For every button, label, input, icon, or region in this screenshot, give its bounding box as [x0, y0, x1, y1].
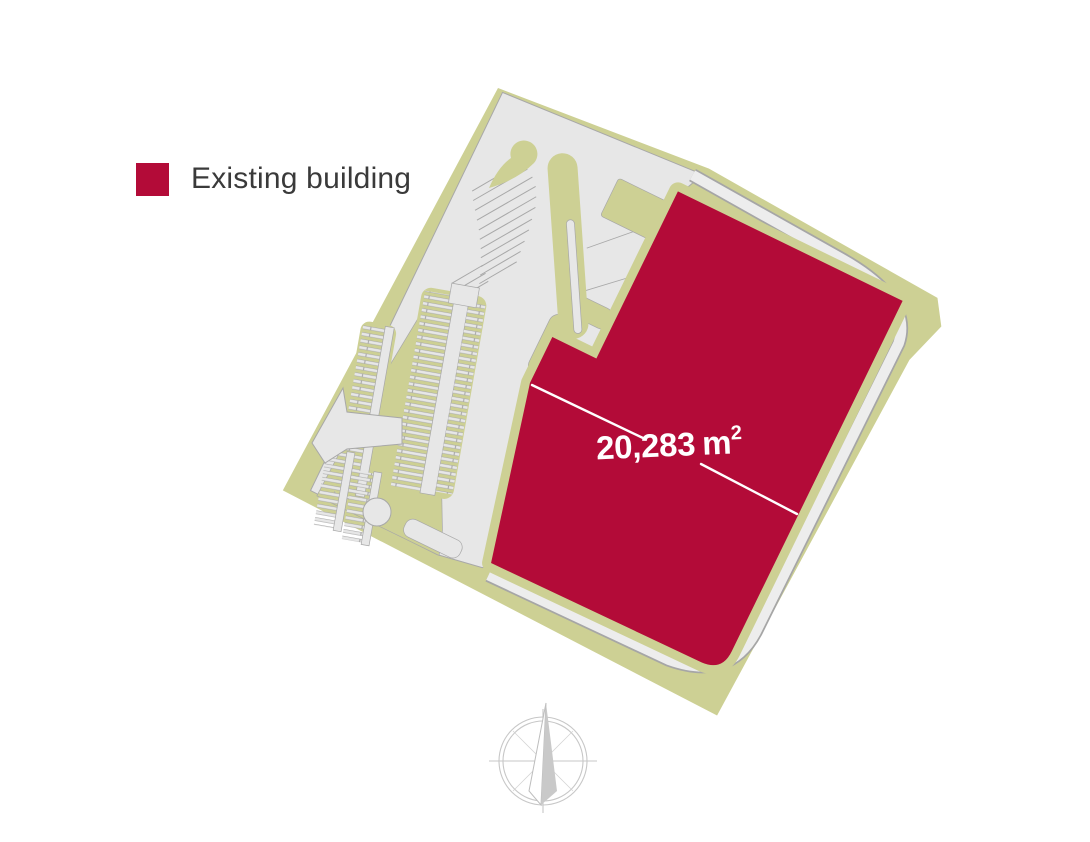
area-unit: m	[701, 423, 732, 461]
legend: Existing building	[136, 162, 411, 196]
north-compass-icon	[489, 703, 597, 813]
roundabout	[363, 498, 391, 526]
legend-label: Existing building	[191, 162, 411, 196]
area-value: 20,283	[595, 425, 696, 466]
legend-swatch	[136, 163, 169, 196]
existing-building-swatch	[136, 163, 169, 196]
site-plan-page: Existing building 20,283m2	[0, 0, 1090, 842]
site-plan-map	[0, 0, 1090, 842]
area-exponent: 2	[730, 422, 742, 444]
